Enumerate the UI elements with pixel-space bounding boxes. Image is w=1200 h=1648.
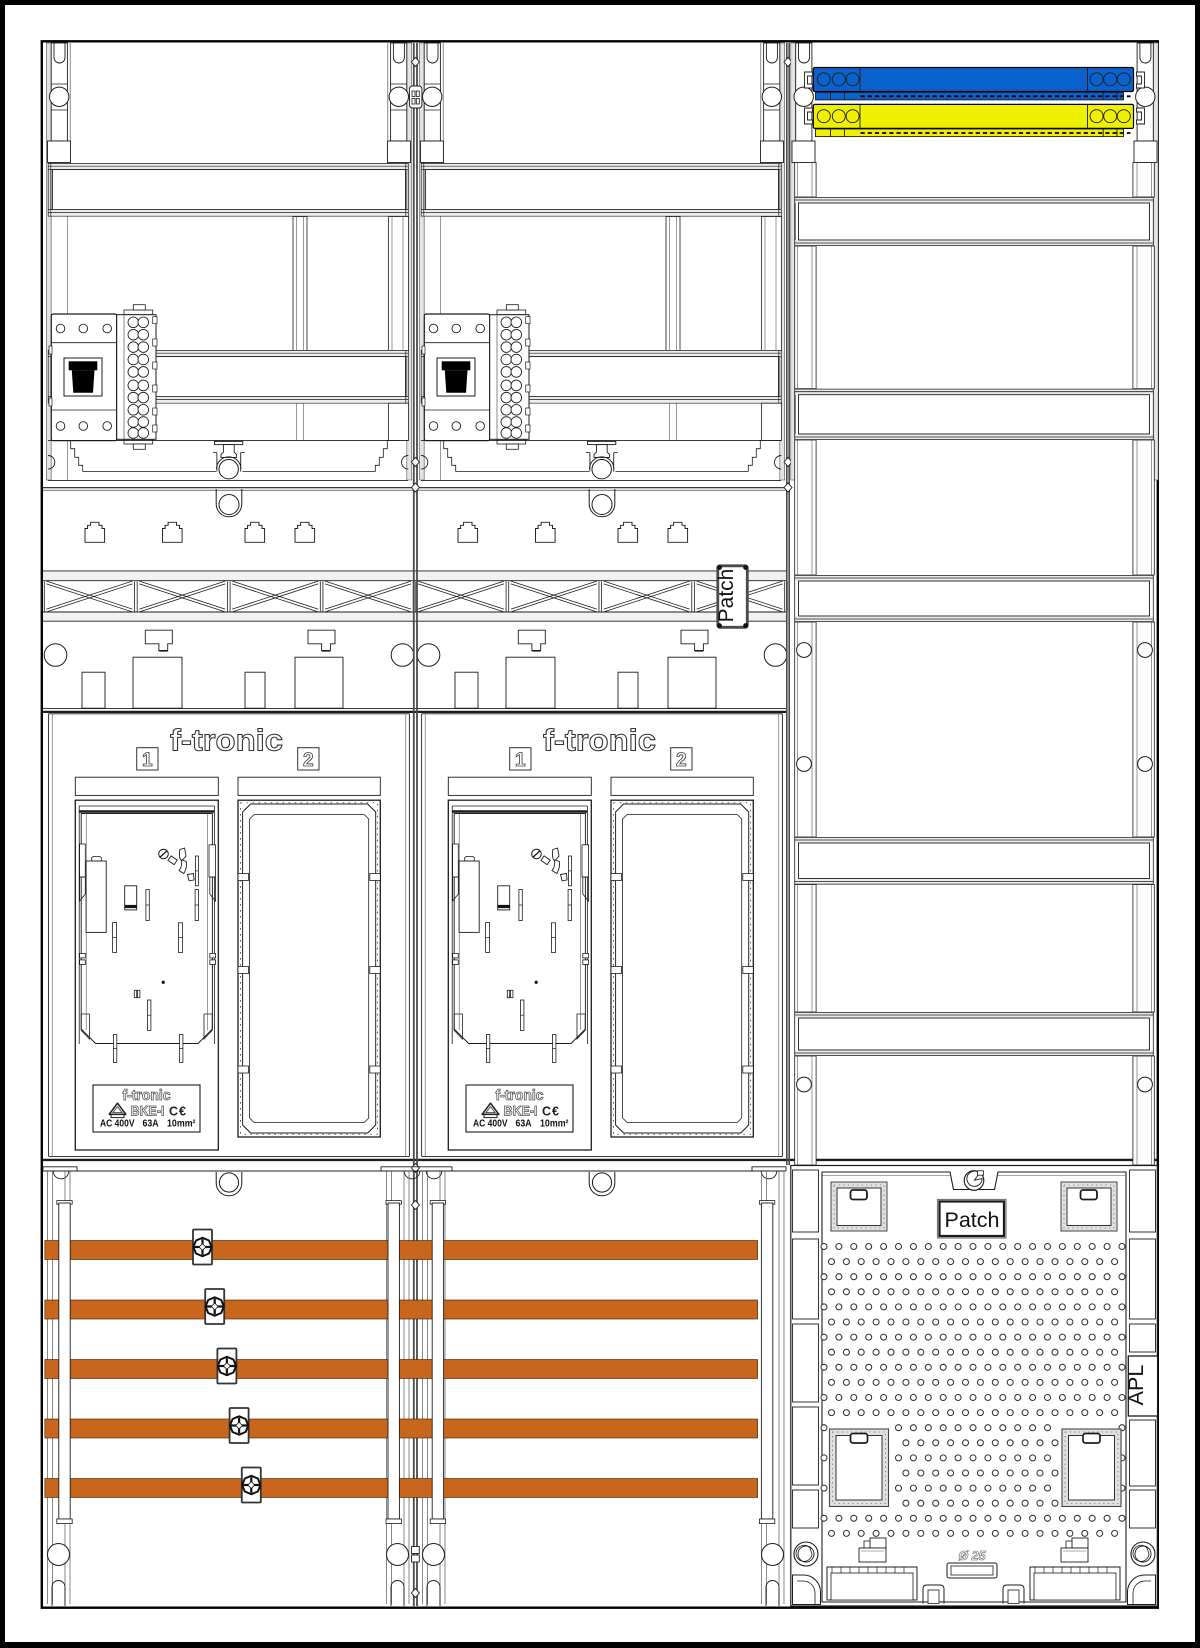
- svg-text:C€: C€: [169, 1105, 187, 1119]
- svg-text:Ø 25: Ø 25: [958, 1549, 986, 1563]
- svg-text:1: 1: [142, 750, 153, 771]
- svg-text:Patch: Patch: [945, 1208, 1000, 1232]
- svg-text:BKE-I: BKE-I: [131, 1103, 165, 1119]
- svg-text:2: 2: [676, 750, 687, 771]
- svg-text:BKE-I: BKE-I: [504, 1103, 538, 1119]
- svg-text:f-tronic: f-tronic: [543, 723, 656, 758]
- svg-text:10mm²: 10mm²: [540, 1118, 569, 1130]
- svg-text:APL: APL: [1124, 1365, 1148, 1406]
- svg-text:1: 1: [515, 750, 526, 771]
- svg-text:2: 2: [303, 750, 314, 771]
- svg-text:63A: 63A: [516, 1118, 532, 1130]
- svg-text:63A: 63A: [143, 1118, 159, 1130]
- svg-text:10mm²: 10mm²: [167, 1118, 196, 1130]
- svg-text:C€: C€: [542, 1105, 560, 1119]
- svg-text:AC 400V: AC 400V: [473, 1118, 508, 1130]
- svg-text:Patch: Patch: [715, 569, 738, 623]
- svg-text:f-tronic: f-tronic: [170, 723, 283, 758]
- svg-text:AC 400V: AC 400V: [100, 1118, 135, 1130]
